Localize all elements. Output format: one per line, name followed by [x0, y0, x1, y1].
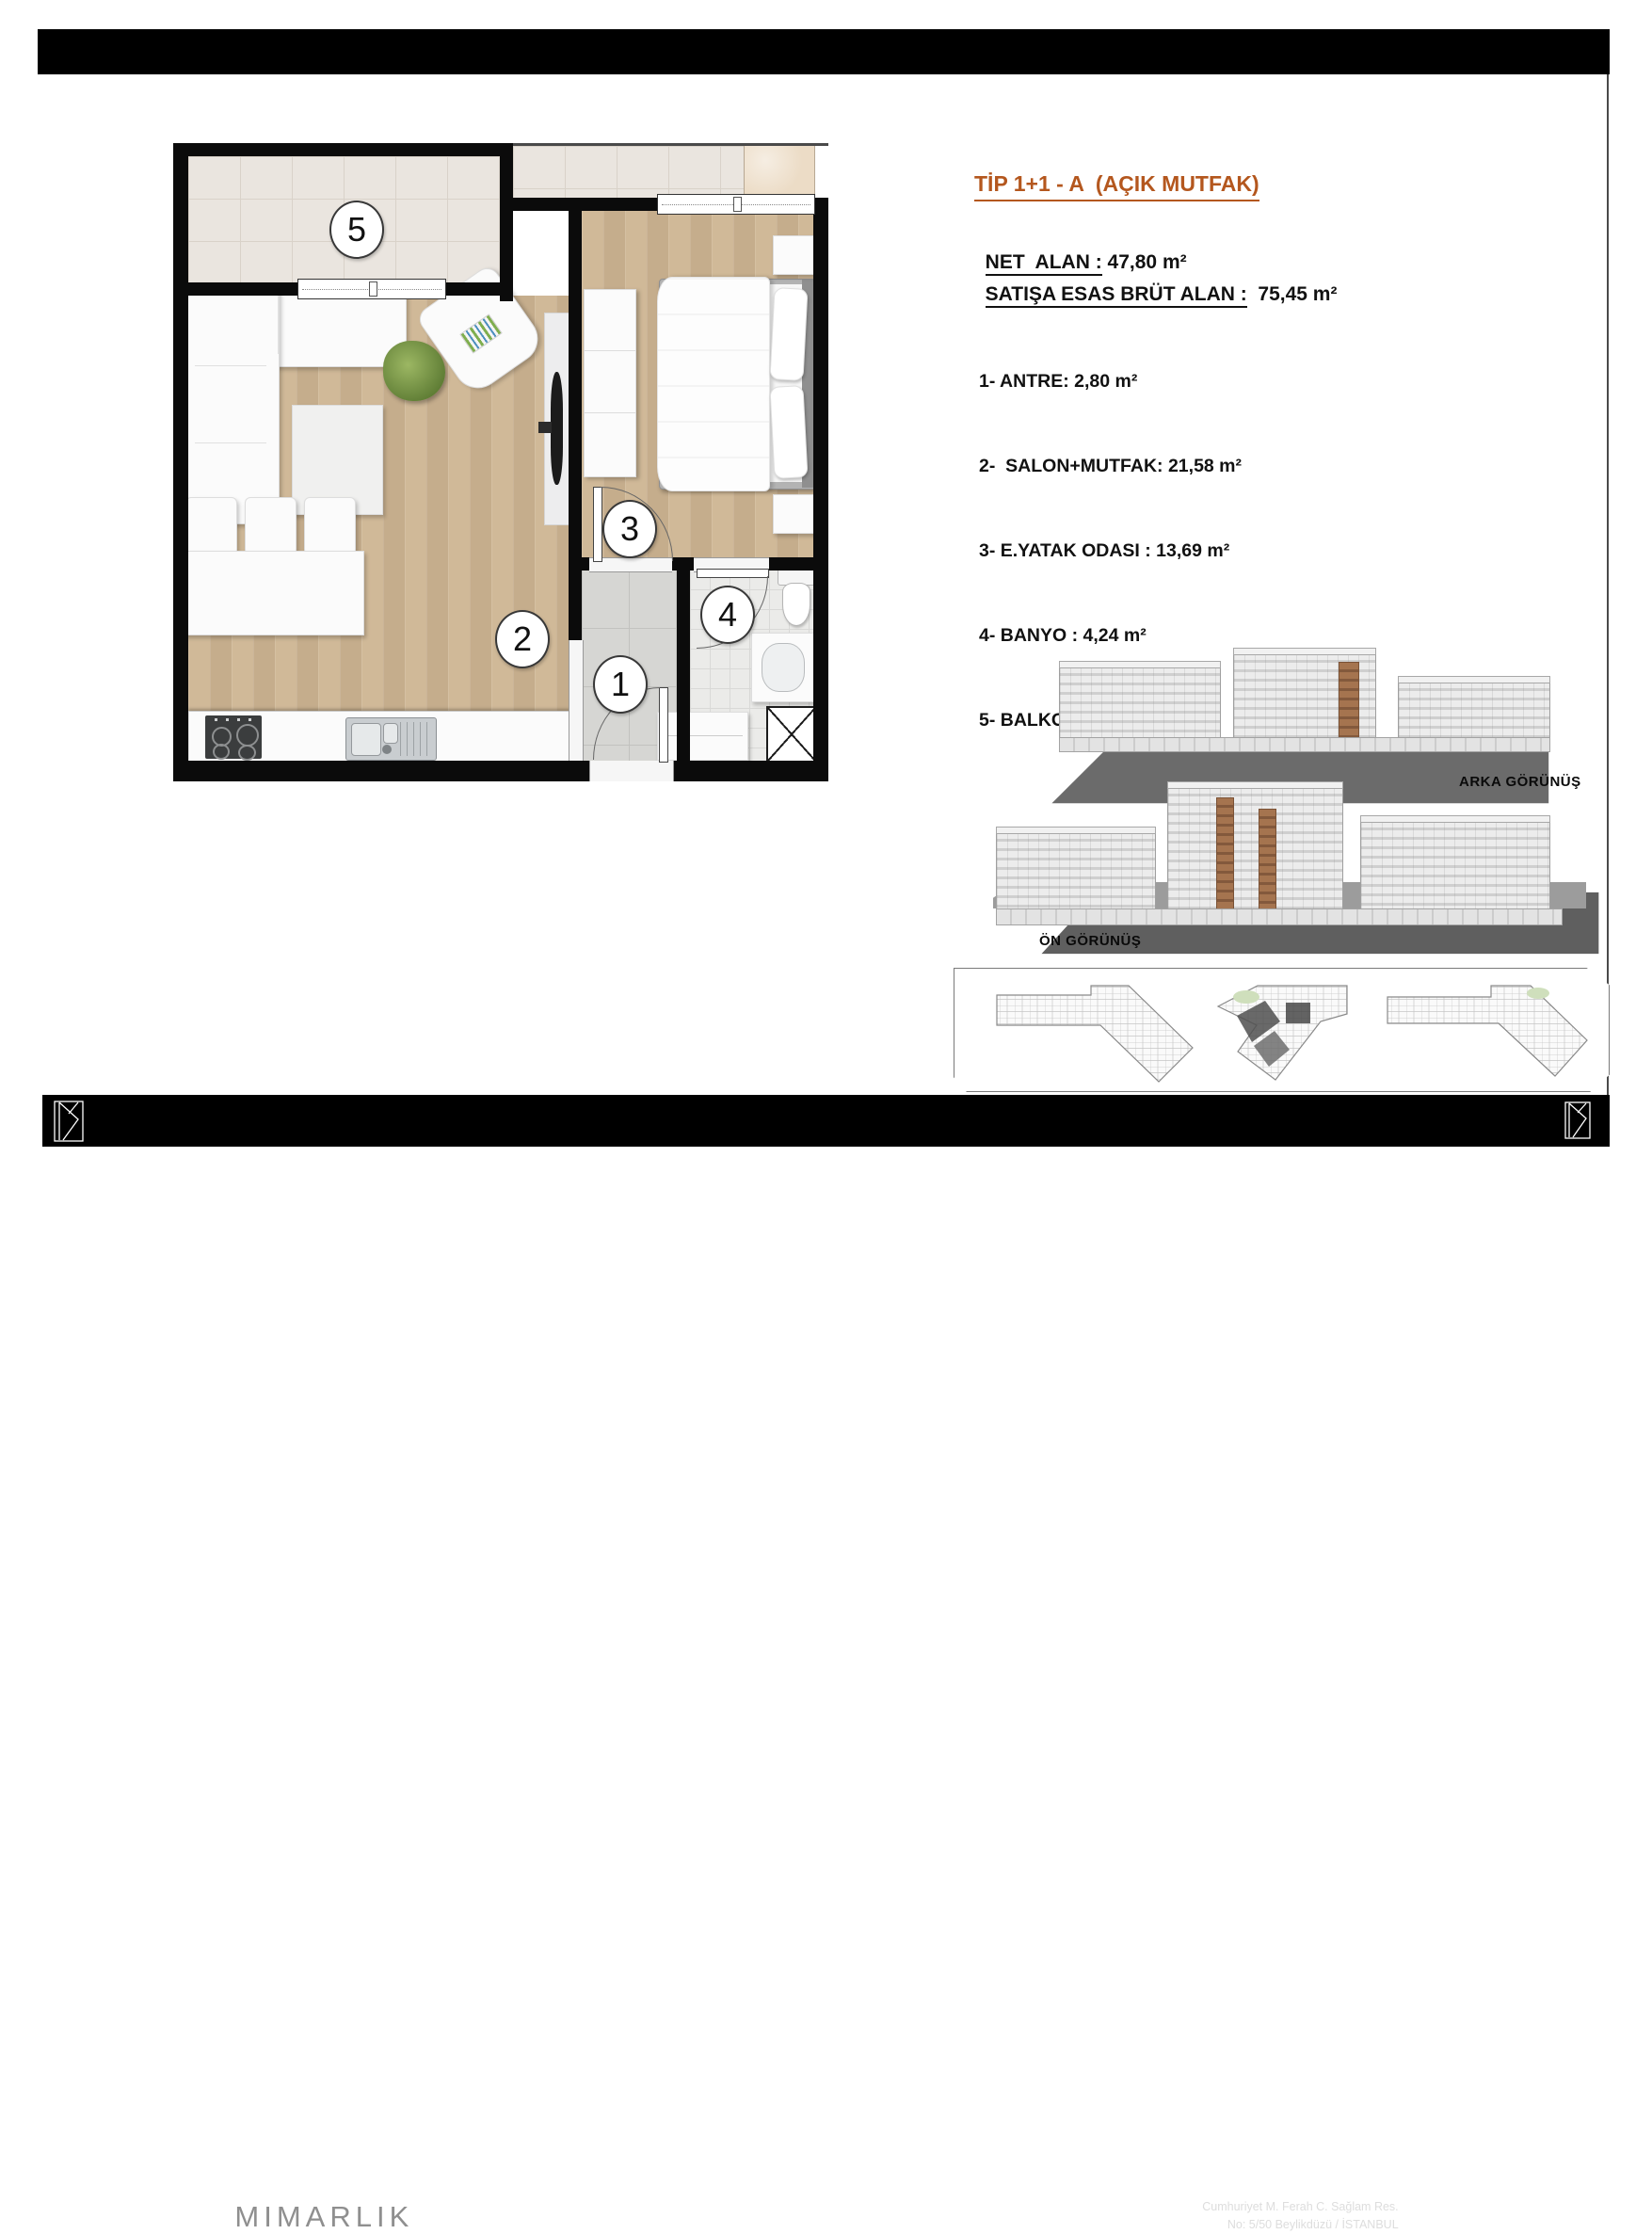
bathroom-vanity — [751, 633, 815, 702]
gross-area-line: SATIŞA ESAS BRÜT ALAN : 75,45 m² — [974, 261, 1337, 306]
thumbnail-plate-right — [1387, 986, 1587, 1076]
front-highlight-column — [1259, 809, 1276, 924]
front-building-right — [1360, 820, 1550, 923]
plant — [383, 341, 445, 401]
dining-chair — [304, 497, 356, 555]
balcony-window — [297, 279, 446, 299]
wall-balcony-bottom-left — [173, 282, 297, 296]
room-list-item: 2- SALON+MUTFAK: 21,58 m² — [979, 452, 1242, 480]
terrace-strip-floor — [513, 146, 744, 198]
tv-stand — [538, 422, 552, 433]
kitchen-sink — [345, 717, 437, 761]
shaft-box — [766, 706, 817, 763]
stove — [205, 715, 262, 759]
gross-area-value: 75,45 m² — [1247, 283, 1338, 305]
address-line-1: Cumhuriyet M. Ferah C. Sağlam Res. — [1202, 2198, 1398, 2216]
entry-door-leaf — [659, 687, 668, 763]
kuba-logo-icon-right — [1564, 1101, 1593, 1139]
sofa-cushion-seam — [195, 365, 266, 366]
floorplate-thumbnails — [954, 969, 1609, 1091]
bathroom-cabinet — [657, 712, 748, 761]
wall-balcony-bottom-right — [444, 282, 513, 296]
wall-balcony-top — [173, 143, 513, 156]
passage-living-entry — [569, 640, 584, 761]
footer-bar: KUBAMIMARLIK Cumhuriyet M. Ferah C. Sağl… — [42, 1095, 1610, 1147]
dining-chair — [185, 497, 237, 555]
sofa-cushion-seam — [278, 294, 279, 354]
room-number-entry: 1 — [593, 655, 648, 714]
kuba-logo-icon — [54, 1101, 89, 1142]
nightstand — [773, 494, 814, 534]
wall-left — [173, 143, 188, 781]
phone-f: F : 0212 853 13 29 — [1414, 2216, 1520, 2234]
sofa-left-section — [184, 282, 280, 524]
wall-entry-bath — [677, 557, 690, 781]
pillow — [769, 385, 808, 479]
room-number-balcony: 5 — [329, 201, 384, 259]
room-number-bedroom: 3 — [602, 500, 657, 558]
wardrobe — [584, 289, 636, 477]
room-number-salon: 2 — [495, 610, 550, 668]
room-list-item: 1- ANTRE: 2,80 m² — [979, 367, 1242, 395]
pillow — [769, 287, 808, 381]
plan-type-title: TİP 1+1 - A (AÇIK MUTFAK) — [974, 171, 1259, 201]
entry-door-opening — [589, 761, 674, 781]
wall-bottom — [173, 761, 828, 781]
thumbnail-plate-middle — [1218, 986, 1347, 1080]
thumbnail-plate-left — [997, 986, 1193, 1082]
floorplate-thumbnails-box — [954, 968, 1610, 1092]
wall-right — [813, 198, 828, 781]
front-highlight-column — [1216, 797, 1234, 924]
dining-chair — [245, 497, 297, 555]
front-elevation: ÖN GÖRÜNÜŞ — [979, 777, 1605, 957]
gross-area-label: SATIŞA ESAS BRÜT ALAN : — [986, 283, 1247, 308]
brand-secondary: MIMARLIK — [234, 2200, 413, 2233]
phone-t: T : 0212 853 50 60 — [1414, 2198, 1520, 2216]
wall-balcony-right — [500, 143, 513, 301]
front-building-middle — [1167, 786, 1343, 923]
room-list-item: 3- E.YATAK ODASI : 13,69 m² — [979, 537, 1242, 565]
bedroom-window — [657, 194, 815, 215]
toilet — [778, 569, 813, 627]
edge-line-top — [513, 143, 828, 146]
address-line-2: No: 5/50 Beylikdüzü / İSTANBUL — [1202, 2216, 1398, 2234]
footer-contact: Cumhuriyet M. Ferah C. Sağlam Res. No: 5… — [1202, 2198, 1520, 2234]
brand-primary: KUBA — [136, 2200, 234, 2233]
brochure-page: { "info": { "title": "TİP 1+1 - A (AÇIK … — [0, 0, 1652, 1167]
tv — [551, 372, 563, 485]
front-podium — [996, 908, 1563, 925]
bed-duvet — [657, 277, 770, 491]
back-podium — [1059, 737, 1550, 752]
sofa-cushion-seam — [195, 442, 266, 443]
nightstand — [773, 235, 814, 275]
dining-table — [184, 551, 364, 635]
front-elevation-label: ÖN GÖRÜNÜŞ — [1039, 933, 1141, 949]
wall-living-divider — [569, 198, 582, 640]
room-number-bathroom: 4 — [700, 586, 755, 644]
marble-area — [744, 143, 815, 200]
brand-wordmark: KUBAMIMARLIK — [136, 2200, 413, 2234]
top-black-bar — [38, 29, 1610, 74]
